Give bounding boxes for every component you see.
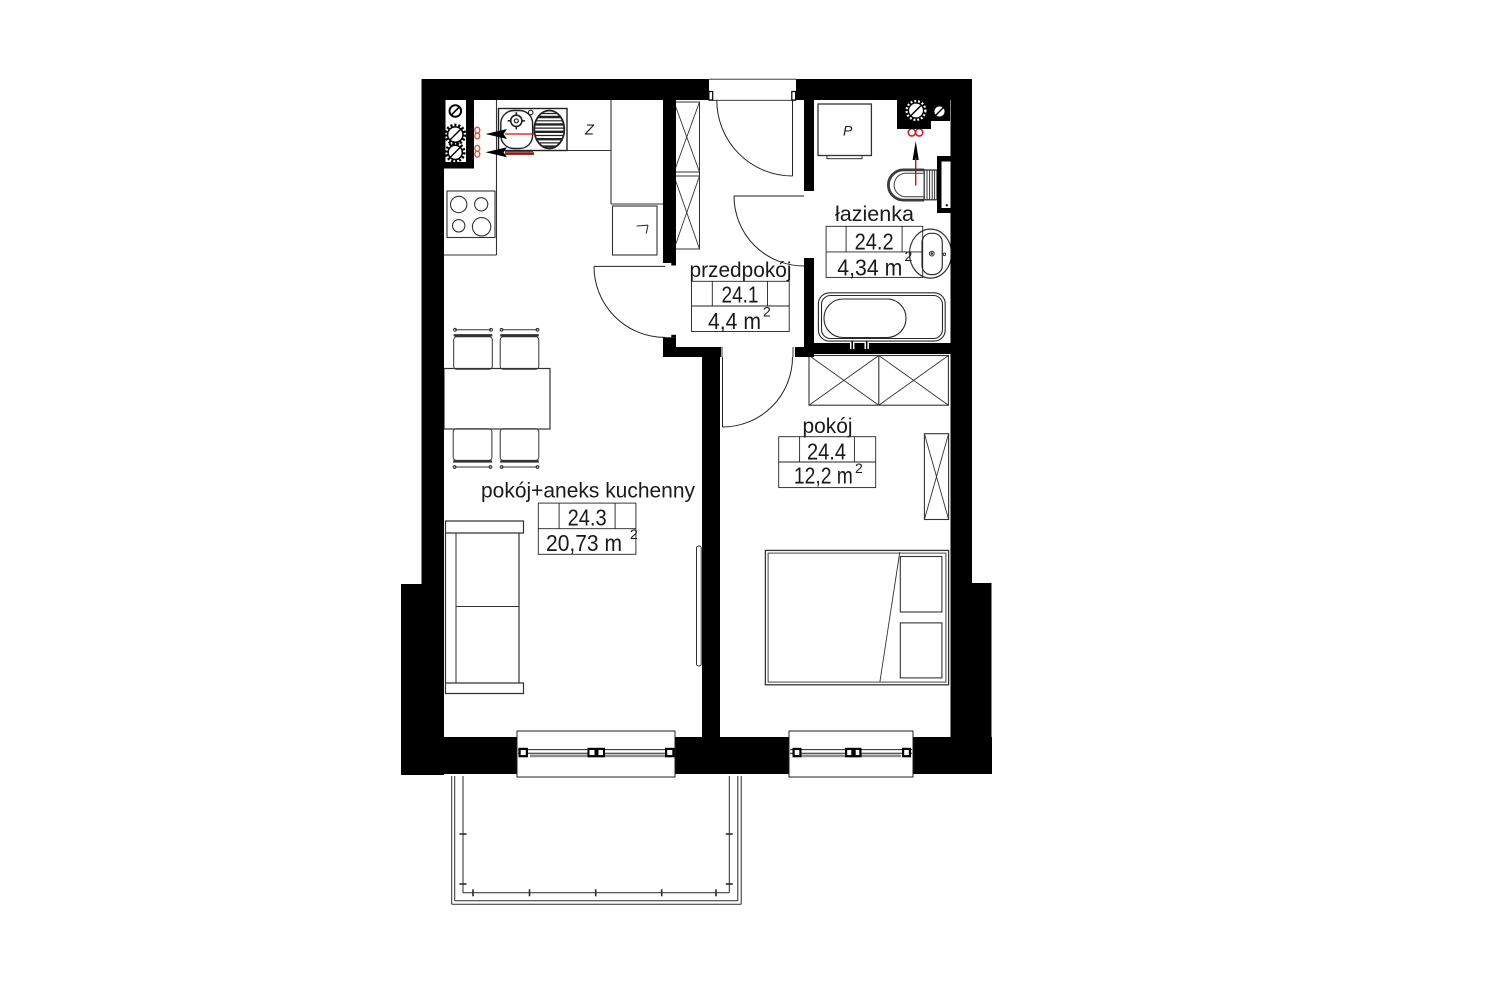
svg-text:24.2: 24.2 [855,228,894,254]
svg-text:12,2 m: 12,2 m [794,463,853,489]
svg-text:4,4 m: 4,4 m [708,308,761,334]
svg-text:Z: Z [584,122,595,138]
svg-text:4,34 m: 4,34 m [837,254,902,280]
svg-text:24.4: 24.4 [807,439,846,465]
svg-text:20,73 m: 20,73 m [546,530,622,556]
svg-text:P: P [843,122,853,138]
svg-text:pokój: pokój [803,414,853,438]
svg-text:2: 2 [855,460,863,476]
svg-text:2: 2 [905,248,913,264]
svg-text:24.1: 24.1 [722,282,759,308]
svg-text:przedpokój: przedpokój [690,258,792,282]
svg-text:2: 2 [763,304,771,320]
svg-text:24.3: 24.3 [568,505,607,531]
svg-text:łazienka: łazienka [835,202,914,226]
svg-text:2: 2 [630,526,638,542]
svg-text:pokój+aneks kuchenny: pokój+aneks kuchenny [481,479,695,503]
